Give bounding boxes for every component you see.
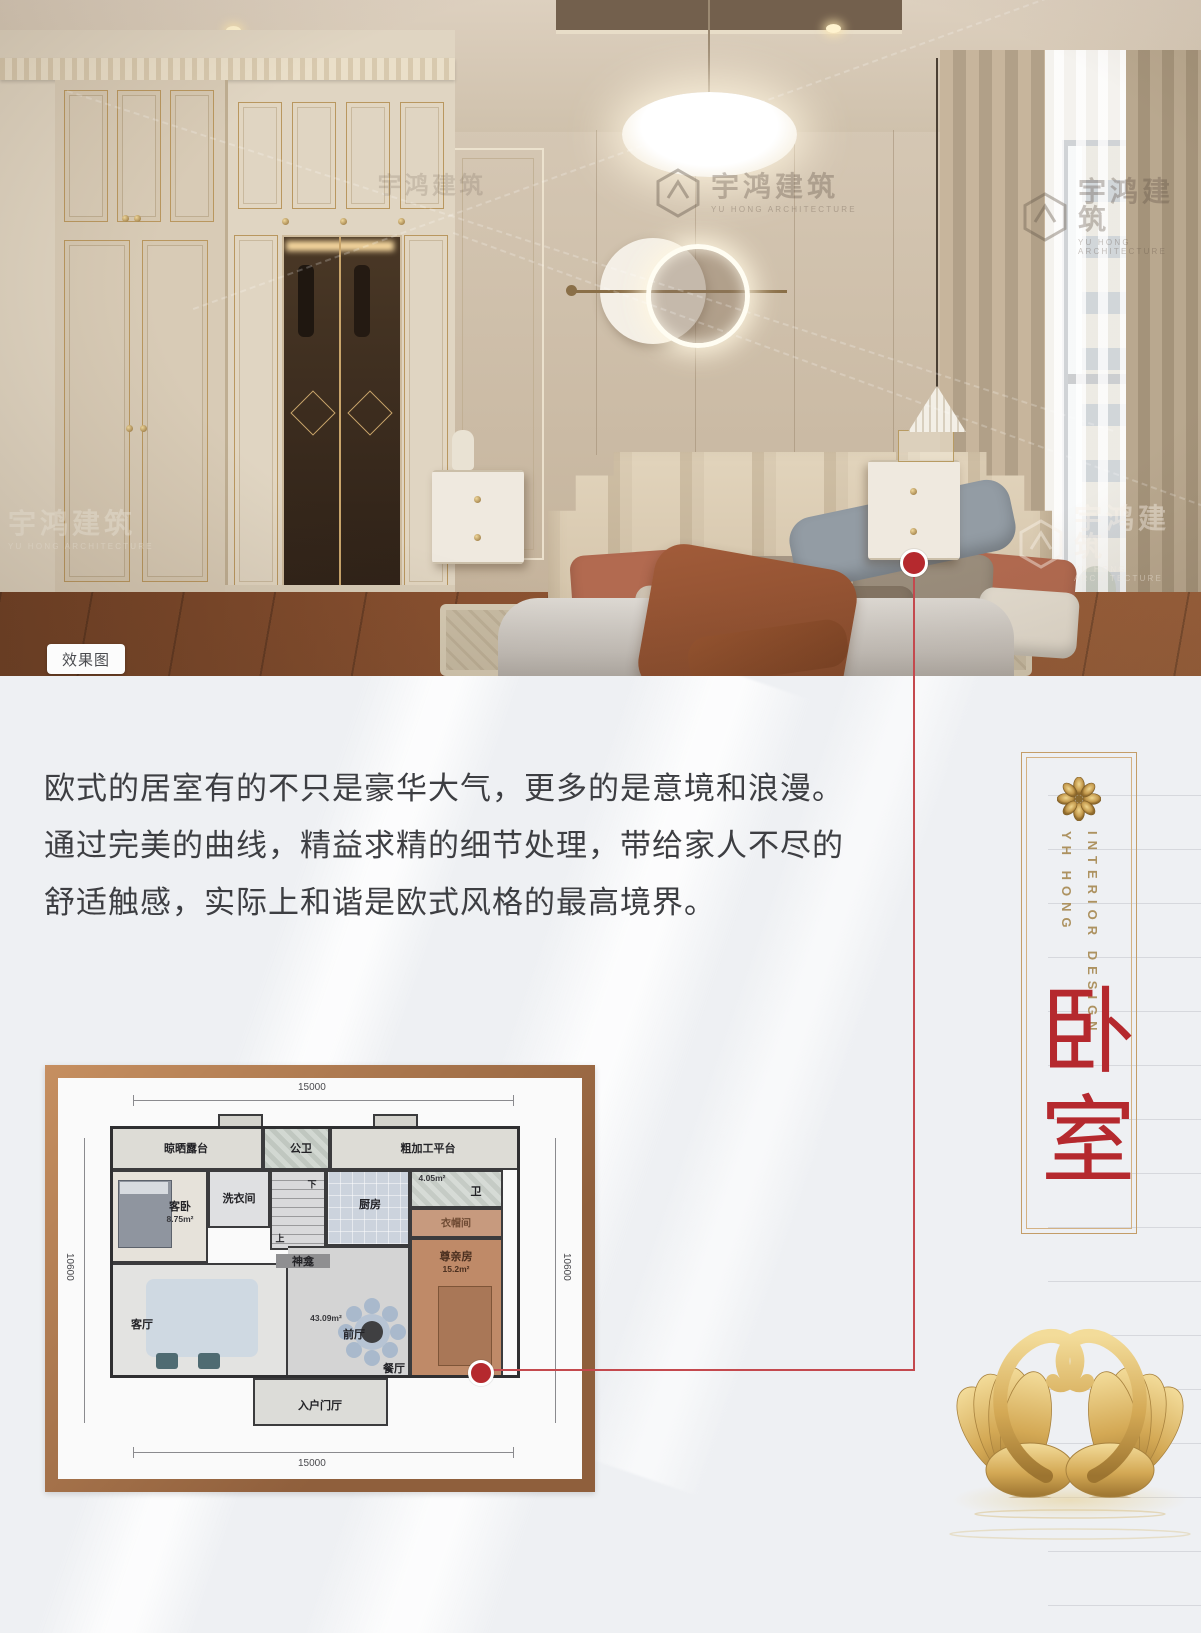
stairs-label: 下 bbox=[307, 1178, 316, 1191]
plan-marker-dot bbox=[468, 1360, 494, 1386]
render-badge: 效果图 bbox=[47, 644, 125, 674]
connector-horizontal-line bbox=[478, 1369, 915, 1371]
stairs-label: 上 bbox=[275, 1232, 284, 1245]
wardrobe-knob-icon bbox=[126, 425, 133, 432]
room-label: 衣帽间 bbox=[441, 1215, 471, 1230]
watermark-logo: 宇鸿建筑 YU HONG ARCHITECTURE bbox=[655, 168, 857, 218]
nightstand-left bbox=[432, 470, 524, 564]
wardrobe-door-panel bbox=[170, 90, 214, 222]
room-label: 餐厅 bbox=[383, 1360, 405, 1376]
rug-symbol bbox=[146, 1279, 258, 1357]
dim-tick bbox=[133, 1447, 134, 1458]
dim-line bbox=[133, 1100, 513, 1101]
dim-tick bbox=[513, 1095, 514, 1106]
bedroom-photo: 宇鸿建筑 YU HONG ARCHITECTURE 宇鸿建筑 YU HONG A… bbox=[0, 0, 1201, 676]
side-panel: INTERIOR DESIGN YH HONG 卧室 bbox=[1021, 752, 1137, 1234]
nightstand-knob-icon bbox=[474, 534, 481, 541]
floor-plan: 15000 15000 10600 10600 bbox=[58, 1078, 582, 1479]
watermark-text: 宇鸿建筑 bbox=[711, 173, 857, 201]
poster-page: 宇鸿建筑 YU HONG ARCHITECTURE 宇鸿建筑 YU HONG A… bbox=[0, 0, 1201, 1633]
dim-tick bbox=[133, 1095, 134, 1106]
room-label: 粗加工平台 bbox=[401, 1140, 456, 1156]
glass-lattice-diamond bbox=[290, 390, 335, 435]
nightstand-right bbox=[868, 460, 960, 560]
connector-vertical-line bbox=[913, 563, 915, 1370]
wardrobe-knob-icon bbox=[122, 215, 129, 222]
nightstand-knob-icon bbox=[910, 528, 917, 535]
watermark-logo: 宇鸿建筑 YU HONG ARCHITECTURE bbox=[0, 505, 154, 555]
wardrobe-knob-icon bbox=[398, 218, 405, 225]
wardrobe-door-panel bbox=[64, 90, 108, 222]
room-area: 43.09m² bbox=[310, 1313, 342, 1323]
glass-lattice bbox=[339, 237, 341, 587]
room-label: 客厅 bbox=[131, 1316, 153, 1332]
room-area: 8.75m² bbox=[167, 1214, 194, 1224]
wardrobe-glass-doors bbox=[282, 235, 402, 589]
wardrobe-knob-icon bbox=[282, 218, 289, 225]
section-title: 卧室 bbox=[1032, 981, 1127, 1199]
hexagon-logo-icon bbox=[655, 168, 701, 218]
dim-top: 15000 bbox=[298, 1082, 326, 1093]
wardrobe-door-panel bbox=[234, 235, 278, 587]
glass-lattice-diamond bbox=[347, 390, 392, 435]
armchair-symbol bbox=[156, 1353, 178, 1369]
room-label: 公卫 bbox=[290, 1140, 312, 1156]
room-label: 神龛 bbox=[292, 1253, 314, 1269]
watermark-text: 宇鸿建筑 bbox=[1078, 178, 1201, 234]
room-label: 厨房 bbox=[359, 1196, 381, 1212]
room-label: 客卧 bbox=[169, 1198, 191, 1214]
bed-symbol bbox=[438, 1286, 492, 1366]
room-label: 入户门厅 bbox=[298, 1397, 342, 1413]
chandelier-icon bbox=[622, 92, 797, 177]
armchair-symbol bbox=[198, 1353, 220, 1369]
hanging-clothes bbox=[354, 265, 370, 337]
room-area: 15.2m² bbox=[443, 1264, 470, 1274]
bed-pillow-symbol bbox=[120, 1182, 168, 1194]
room-area: 4.05m² bbox=[419, 1173, 446, 1183]
wardrobe-knob-icon bbox=[140, 425, 147, 432]
watermark-subtext: YU HONG ARCHITECTURE bbox=[8, 542, 154, 551]
photo-marker-dot bbox=[900, 549, 928, 577]
ceiling-spotlight-icon bbox=[826, 24, 841, 33]
dim-right: 10600 bbox=[561, 1253, 572, 1281]
wall-seam bbox=[893, 130, 894, 455]
watermark-subtext: YU HONG ARCHITECTURE bbox=[1078, 238, 1201, 256]
glass-box bbox=[898, 430, 954, 462]
room-label: 卫 bbox=[471, 1183, 482, 1199]
dim-tick bbox=[513, 1447, 514, 1458]
watermark-logo: 宇鸿建筑 YU HONG ARCHITECTURE bbox=[1022, 178, 1201, 256]
room-label: 尊亲房 bbox=[440, 1248, 473, 1264]
pendant-cable bbox=[936, 58, 938, 388]
wardrobe-knob-icon bbox=[340, 218, 347, 225]
nightstand-knob-icon bbox=[474, 496, 481, 503]
watermark-text: 宇鸿建筑 bbox=[8, 510, 154, 538]
nightstand-knob-icon bbox=[910, 488, 917, 495]
room-label: 晾晒露台 bbox=[164, 1140, 208, 1156]
room-label: 前厅 bbox=[343, 1326, 365, 1342]
dim-line bbox=[133, 1452, 513, 1453]
watermark-subtext: YU HONG ARCHITECTURE bbox=[1074, 565, 1201, 583]
hexagon-logo-icon bbox=[1022, 192, 1068, 242]
watermark-logo: 宇鸿建筑 bbox=[378, 174, 487, 198]
watermark-logo: 宇鸿建筑 YU HONG ARCHITECTURE bbox=[1018, 505, 1201, 583]
ceiling-cove bbox=[556, 0, 902, 34]
chandelier-cable bbox=[708, 0, 710, 96]
vase bbox=[452, 430, 474, 470]
side-en-line2: YH HONG bbox=[1059, 831, 1074, 934]
floor-plan-frame: 15000 15000 10600 10600 bbox=[45, 1065, 595, 1492]
wardrobe-door-panel bbox=[292, 102, 336, 209]
gold-flower-icon bbox=[1057, 777, 1101, 821]
watermark-text: 宇鸿建筑 bbox=[1074, 505, 1201, 561]
wardrobe-door-panel bbox=[238, 102, 282, 209]
sconce-finial bbox=[566, 285, 577, 296]
wardrobe-knob-icon bbox=[134, 215, 141, 222]
hexagon-logo-icon bbox=[1018, 519, 1064, 569]
dim-bottom: 15000 bbox=[298, 1458, 326, 1469]
hanging-clothes bbox=[298, 265, 314, 337]
golden-swans-figurine bbox=[942, 1262, 1198, 1592]
watermark-text: 宇鸿建筑 bbox=[378, 174, 487, 198]
room-label: 洗衣间 bbox=[223, 1190, 256, 1206]
dim-line bbox=[555, 1138, 556, 1423]
article-paragraph: 欧式的居室有的不只是豪华大气，更多的是意境和浪漫。通过完美的曲线，精益求精的细节… bbox=[44, 760, 850, 931]
crown-molding bbox=[0, 58, 455, 80]
render-badge-label: 效果图 bbox=[62, 649, 110, 670]
watermark-subtext: YU HONG ARCHITECTURE bbox=[711, 205, 857, 214]
dim-line bbox=[84, 1138, 85, 1423]
dim-left: 10600 bbox=[64, 1253, 75, 1281]
